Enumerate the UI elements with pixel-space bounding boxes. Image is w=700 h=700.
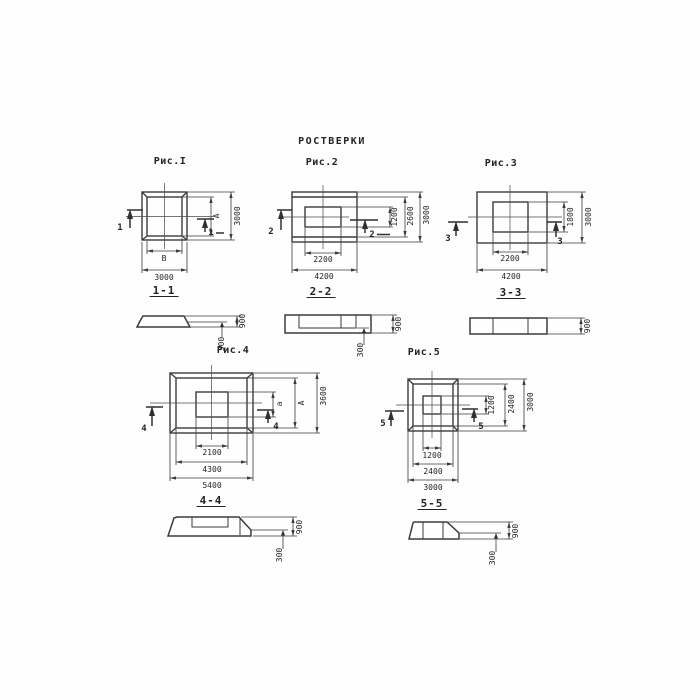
fig4-dim-outer-height: 3600 — [320, 386, 328, 405]
fig4-dim-mid-width: 4300 — [202, 466, 221, 474]
fig2-caption: Рис.2 — [306, 159, 339, 167]
fig3-cut-marker-left: 3 — [445, 235, 450, 243]
fig3-dim-inner-width: 2200 — [500, 255, 519, 263]
fig1-dim-inner-width: В — [162, 255, 167, 263]
fig4-dim-mid-height: А — [298, 401, 306, 406]
fig1-dim-outer-width: 3000 — [154, 274, 173, 282]
section-5-5-edge-height: 300 — [489, 551, 497, 565]
fig4-dim-outer-width: 5400 — [202, 482, 221, 490]
section-3-3-total-height: 900 — [584, 319, 592, 333]
fig1-cut-marker-left: 1 — [117, 224, 122, 232]
fig4-dim-inner-height: а — [276, 402, 284, 407]
section-5-5-label: 5-5 — [418, 500, 447, 510]
section-4-4-total-height: 900 — [296, 520, 304, 534]
fig1-cut-marker-right: 1 — [208, 229, 213, 237]
fig4-dim-inner-width: 2100 — [202, 449, 221, 457]
fig3-caption: Рис.3 — [485, 160, 518, 168]
fig3-cut-marker-right: 3 — [557, 238, 562, 246]
fig5-dim-mid-height: 2400 — [508, 394, 516, 413]
fig5-dim-inner-width: 1200 — [422, 452, 441, 460]
fig1-dim-outer-height: 3000 — [234, 206, 242, 225]
fig2-dim-outer-height: 3000 — [423, 205, 431, 224]
section-4-4-edge-height: 300 — [276, 548, 284, 562]
fig5-cut-marker-right: 5 — [478, 423, 483, 431]
section-1-1-label: 1-1 — [150, 287, 179, 297]
fig2-cut-marker-left: 2 — [268, 228, 273, 236]
blueprint-canvas: РОСТВЕРКИ Рис.I 1 1 А 3000 В 3000 1-1 30… — [0, 0, 700, 700]
fig5-dim-outer-width: 3000 — [423, 484, 442, 492]
section-2-2-edge-height: 300 — [357, 343, 365, 357]
drawing-linework — [0, 0, 700, 700]
fig2-dim-inner-height: 1200 — [391, 207, 399, 226]
fig5-dim-inner-height: 1200 — [488, 395, 496, 414]
fig3-dim-outer-height: 3000 — [585, 207, 593, 226]
section-3-3-label: 3-3 — [497, 289, 526, 299]
fig3-dim-outer-width: 4200 — [501, 273, 520, 281]
section-5-5-total-height: 900 — [512, 524, 520, 538]
fig2-cut-marker-right: 2 — [369, 231, 374, 239]
section-2-2-total-height: 900 — [395, 317, 403, 331]
fig3-dim-inner-height: 1800 — [567, 207, 575, 226]
fig2-dim-mid-height: 2600 — [407, 206, 415, 225]
fig2-dim-inner-width: 2200 — [313, 256, 332, 264]
section-2-2-label: 2-2 — [307, 288, 336, 298]
fig1-caption: Рис.I — [154, 158, 187, 166]
fig5-caption: Рис.5 — [408, 349, 441, 357]
fig5-cut-marker-left: 5 — [380, 420, 385, 428]
fig4-cut-marker-left: 4 — [141, 425, 146, 433]
fig1-dim-inner-height: А — [213, 214, 221, 219]
fig2-dim-outer-width: 4200 — [314, 273, 333, 281]
page-title: РОСТВЕРКИ — [298, 138, 366, 146]
section-4-4-label: 4-4 — [197, 497, 226, 507]
section-1-1-total-height: 900 — [239, 314, 247, 328]
fig4-caption: Рис.4 — [217, 347, 250, 355]
fig5-dim-mid-width: 2400 — [423, 468, 442, 476]
fig4-cut-marker-right: 4 — [273, 423, 278, 431]
fig5-dim-outer-height: 3000 — [527, 392, 535, 411]
